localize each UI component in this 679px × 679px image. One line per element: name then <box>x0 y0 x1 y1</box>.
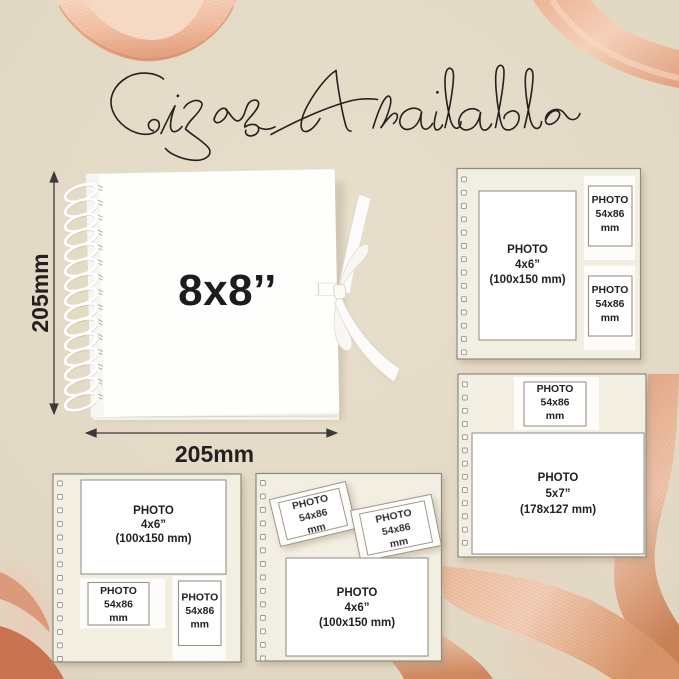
svg-text:4x6”: 4x6” <box>141 519 166 531</box>
svg-text:(100x150 mm): (100x150 mm) <box>319 617 395 629</box>
svg-text:(178x127 mm): (178x127 mm) <box>520 504 596 516</box>
svg-text:PHOTO: PHOTO <box>537 384 574 395</box>
svg-text:mm: mm <box>546 411 564 422</box>
svg-text:205mm: 205mm <box>175 441 254 467</box>
svg-text:PHOTO: PHOTO <box>337 587 378 599</box>
svg-text:PHOTO: PHOTO <box>538 472 579 484</box>
svg-text:205mm: 205mm <box>27 253 53 332</box>
svg-text:mm: mm <box>109 613 127 624</box>
svg-text:(100x150 mm): (100x150 mm) <box>489 274 565 286</box>
svg-text:(100x150 mm): (100x150 mm) <box>115 533 191 545</box>
svg-text:PHOTO: PHOTO <box>592 195 629 206</box>
svg-text:4x6”: 4x6” <box>345 602 370 614</box>
svg-text:PHOTO: PHOTO <box>181 593 218 604</box>
svg-text:8x8’’: 8x8’’ <box>178 266 277 315</box>
svg-text:PHOTO: PHOTO <box>592 285 629 296</box>
svg-text:54x86: 54x86 <box>541 398 570 409</box>
svg-text:PHOTO: PHOTO <box>133 505 174 517</box>
svg-text:mm: mm <box>191 620 209 631</box>
svg-text:54x86: 54x86 <box>596 209 625 220</box>
svg-text:PHOTO: PHOTO <box>100 586 137 597</box>
svg-text:54x86: 54x86 <box>596 299 625 310</box>
svg-text:mm: mm <box>601 313 619 324</box>
svg-text:54x86: 54x86 <box>104 600 133 611</box>
svg-text:mm: mm <box>601 223 619 234</box>
svg-text:5x7”: 5x7” <box>546 488 571 500</box>
svg-text:54x86: 54x86 <box>185 606 214 617</box>
svg-text:4x6”: 4x6” <box>515 259 540 271</box>
svg-text:PHOTO: PHOTO <box>507 244 548 256</box>
